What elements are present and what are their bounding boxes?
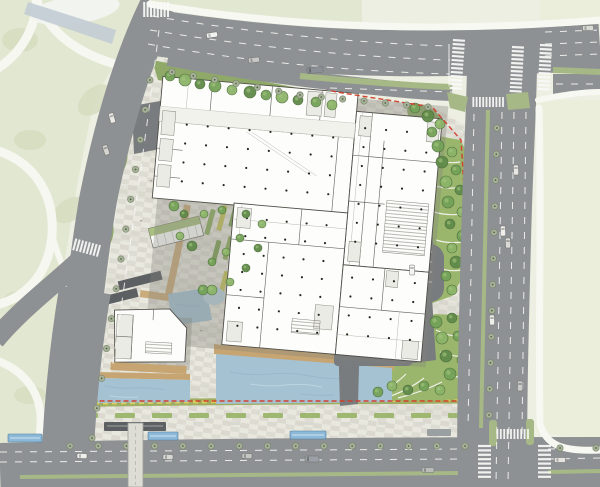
site-plan-canvas bbox=[0, 0, 600, 487]
shelter-gray bbox=[427, 429, 451, 436]
reflecting-pool-west bbox=[96, 378, 190, 403]
south-road bbox=[0, 462, 600, 468]
stairs-hatch bbox=[291, 319, 320, 335]
site-plan-drawing bbox=[0, 0, 600, 487]
west-road-south-widening bbox=[68, 290, 85, 448]
